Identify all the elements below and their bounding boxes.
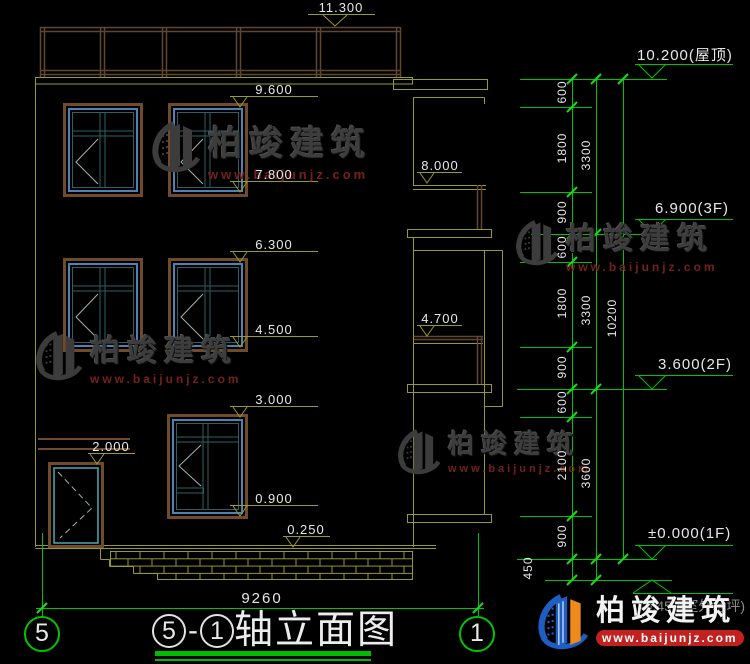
dim-1800-b: 1800: [555, 278, 569, 328]
parapet-railing: [40, 27, 401, 77]
entry-door: [50, 464, 103, 547]
title-axis-b: 1: [200, 614, 234, 648]
dim-3600: 3600: [579, 448, 593, 498]
brand-logo-site: www.baijunjz.com: [596, 630, 744, 646]
title-text: 轴立面图: [234, 610, 398, 652]
dim-3300-a: 3300: [579, 130, 593, 180]
elev-0250: 0.250: [279, 522, 333, 537]
brick-plinth: [101, 548, 413, 580]
dim-600-a: 600: [555, 67, 569, 117]
axis-bubble-1: 1: [459, 616, 495, 652]
title-underline-thin: [155, 659, 371, 661]
dim-600-b: 600: [555, 222, 569, 272]
elev-8000: 8.000: [414, 158, 466, 173]
elev-3000: 3.000: [230, 392, 318, 407]
bay-balcony: [408, 336, 492, 523]
title-underline-thick: [155, 651, 371, 656]
dim-total-width: 9260: [220, 590, 304, 607]
dim-900-c: 900: [555, 511, 569, 561]
level-2f: 3.600(2F): [658, 356, 732, 373]
elev-6300: 6.300: [230, 237, 318, 252]
brand-logo-icon: [536, 587, 590, 655]
level-roof: 10.200(屋顶): [637, 44, 733, 65]
level-1f: ±0.000(1F): [648, 525, 731, 542]
dim-1800-a: 1800: [555, 123, 569, 173]
window-3f-left: [65, 105, 142, 196]
elev-4500: 4.500: [230, 322, 318, 337]
dim-2100: 2100: [555, 440, 569, 490]
drawing-title: 5 - 1 轴立面图: [152, 610, 398, 652]
dim-10200: 10200: [605, 293, 619, 343]
elev-7800: 7.800: [230, 167, 318, 182]
dim-450: 450: [521, 543, 535, 593]
dim-3300-b: 3300: [579, 285, 593, 335]
elev-11300: 11.300: [306, 0, 376, 15]
title-dash: -: [188, 614, 198, 648]
cad-elevation-screenshot: 柏竣建筑 www.baijunjz.com 柏竣建筑 www.baijunjz.…: [0, 0, 750, 664]
elevation-drawing-svg: [0, 0, 750, 664]
elev-2000: 2.000: [84, 439, 138, 454]
brand-logo: 柏竣建筑 www.baijunjz.com: [536, 587, 744, 655]
axis-number: 1: [470, 619, 484, 647]
window-2f-left: [65, 260, 142, 351]
elev-9600: 9.600: [230, 82, 318, 97]
roof-balcony: [408, 185, 492, 238]
dim-600-c: 600: [555, 377, 569, 427]
axis-bubble-5: 5: [24, 616, 60, 652]
level-3f: 6.900(3F): [655, 200, 729, 217]
elev-0900: 0.900: [230, 491, 318, 506]
axis-number: 5: [35, 619, 49, 647]
brand-logo-text: 柏竣建筑: [596, 587, 744, 629]
elev-4700: 4.700: [414, 311, 466, 326]
title-axis-a: 5: [152, 614, 186, 648]
